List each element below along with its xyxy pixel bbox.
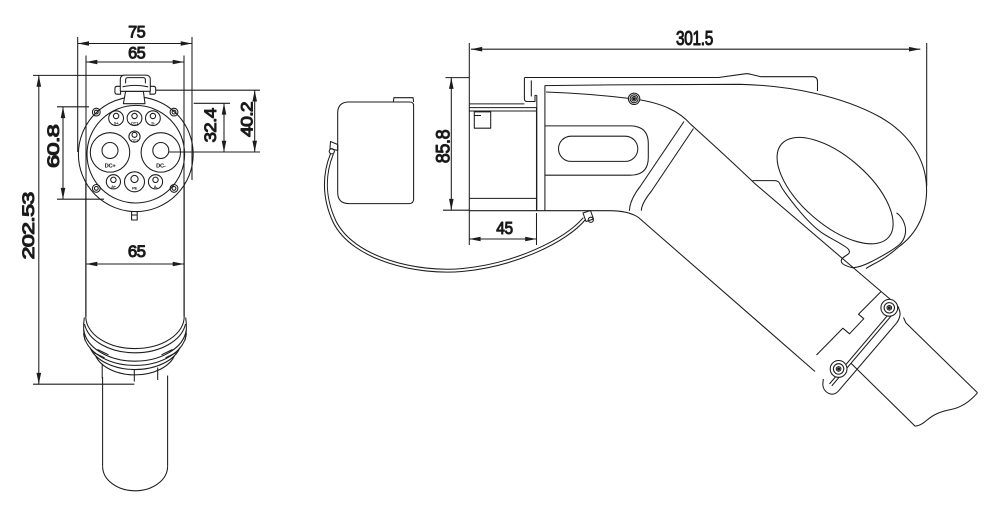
svg-text:60.8: 60.8 — [44, 125, 63, 168]
svg-text:65: 65 — [128, 44, 145, 63]
svg-text:45: 45 — [496, 218, 513, 238]
svg-text:S-: S- — [151, 121, 155, 126]
svg-text:75: 75 — [128, 23, 145, 42]
svg-text:85.8: 85.8 — [434, 130, 455, 164]
svg-text:202.53: 202.53 — [19, 192, 38, 259]
svg-text:32.4: 32.4 — [201, 108, 220, 142]
svg-text:CC2: CC2 — [131, 138, 139, 143]
svg-text:DC-: DC- — [156, 164, 166, 170]
svg-text:DC+: DC+ — [105, 164, 117, 170]
svg-text:40.2: 40.2 — [238, 102, 257, 137]
svg-text:301.5: 301.5 — [676, 28, 713, 50]
svg-text:CC1: CC1 — [131, 121, 139, 126]
svg-text:65: 65 — [128, 242, 146, 261]
svg-text:PE: PE — [132, 186, 137, 191]
